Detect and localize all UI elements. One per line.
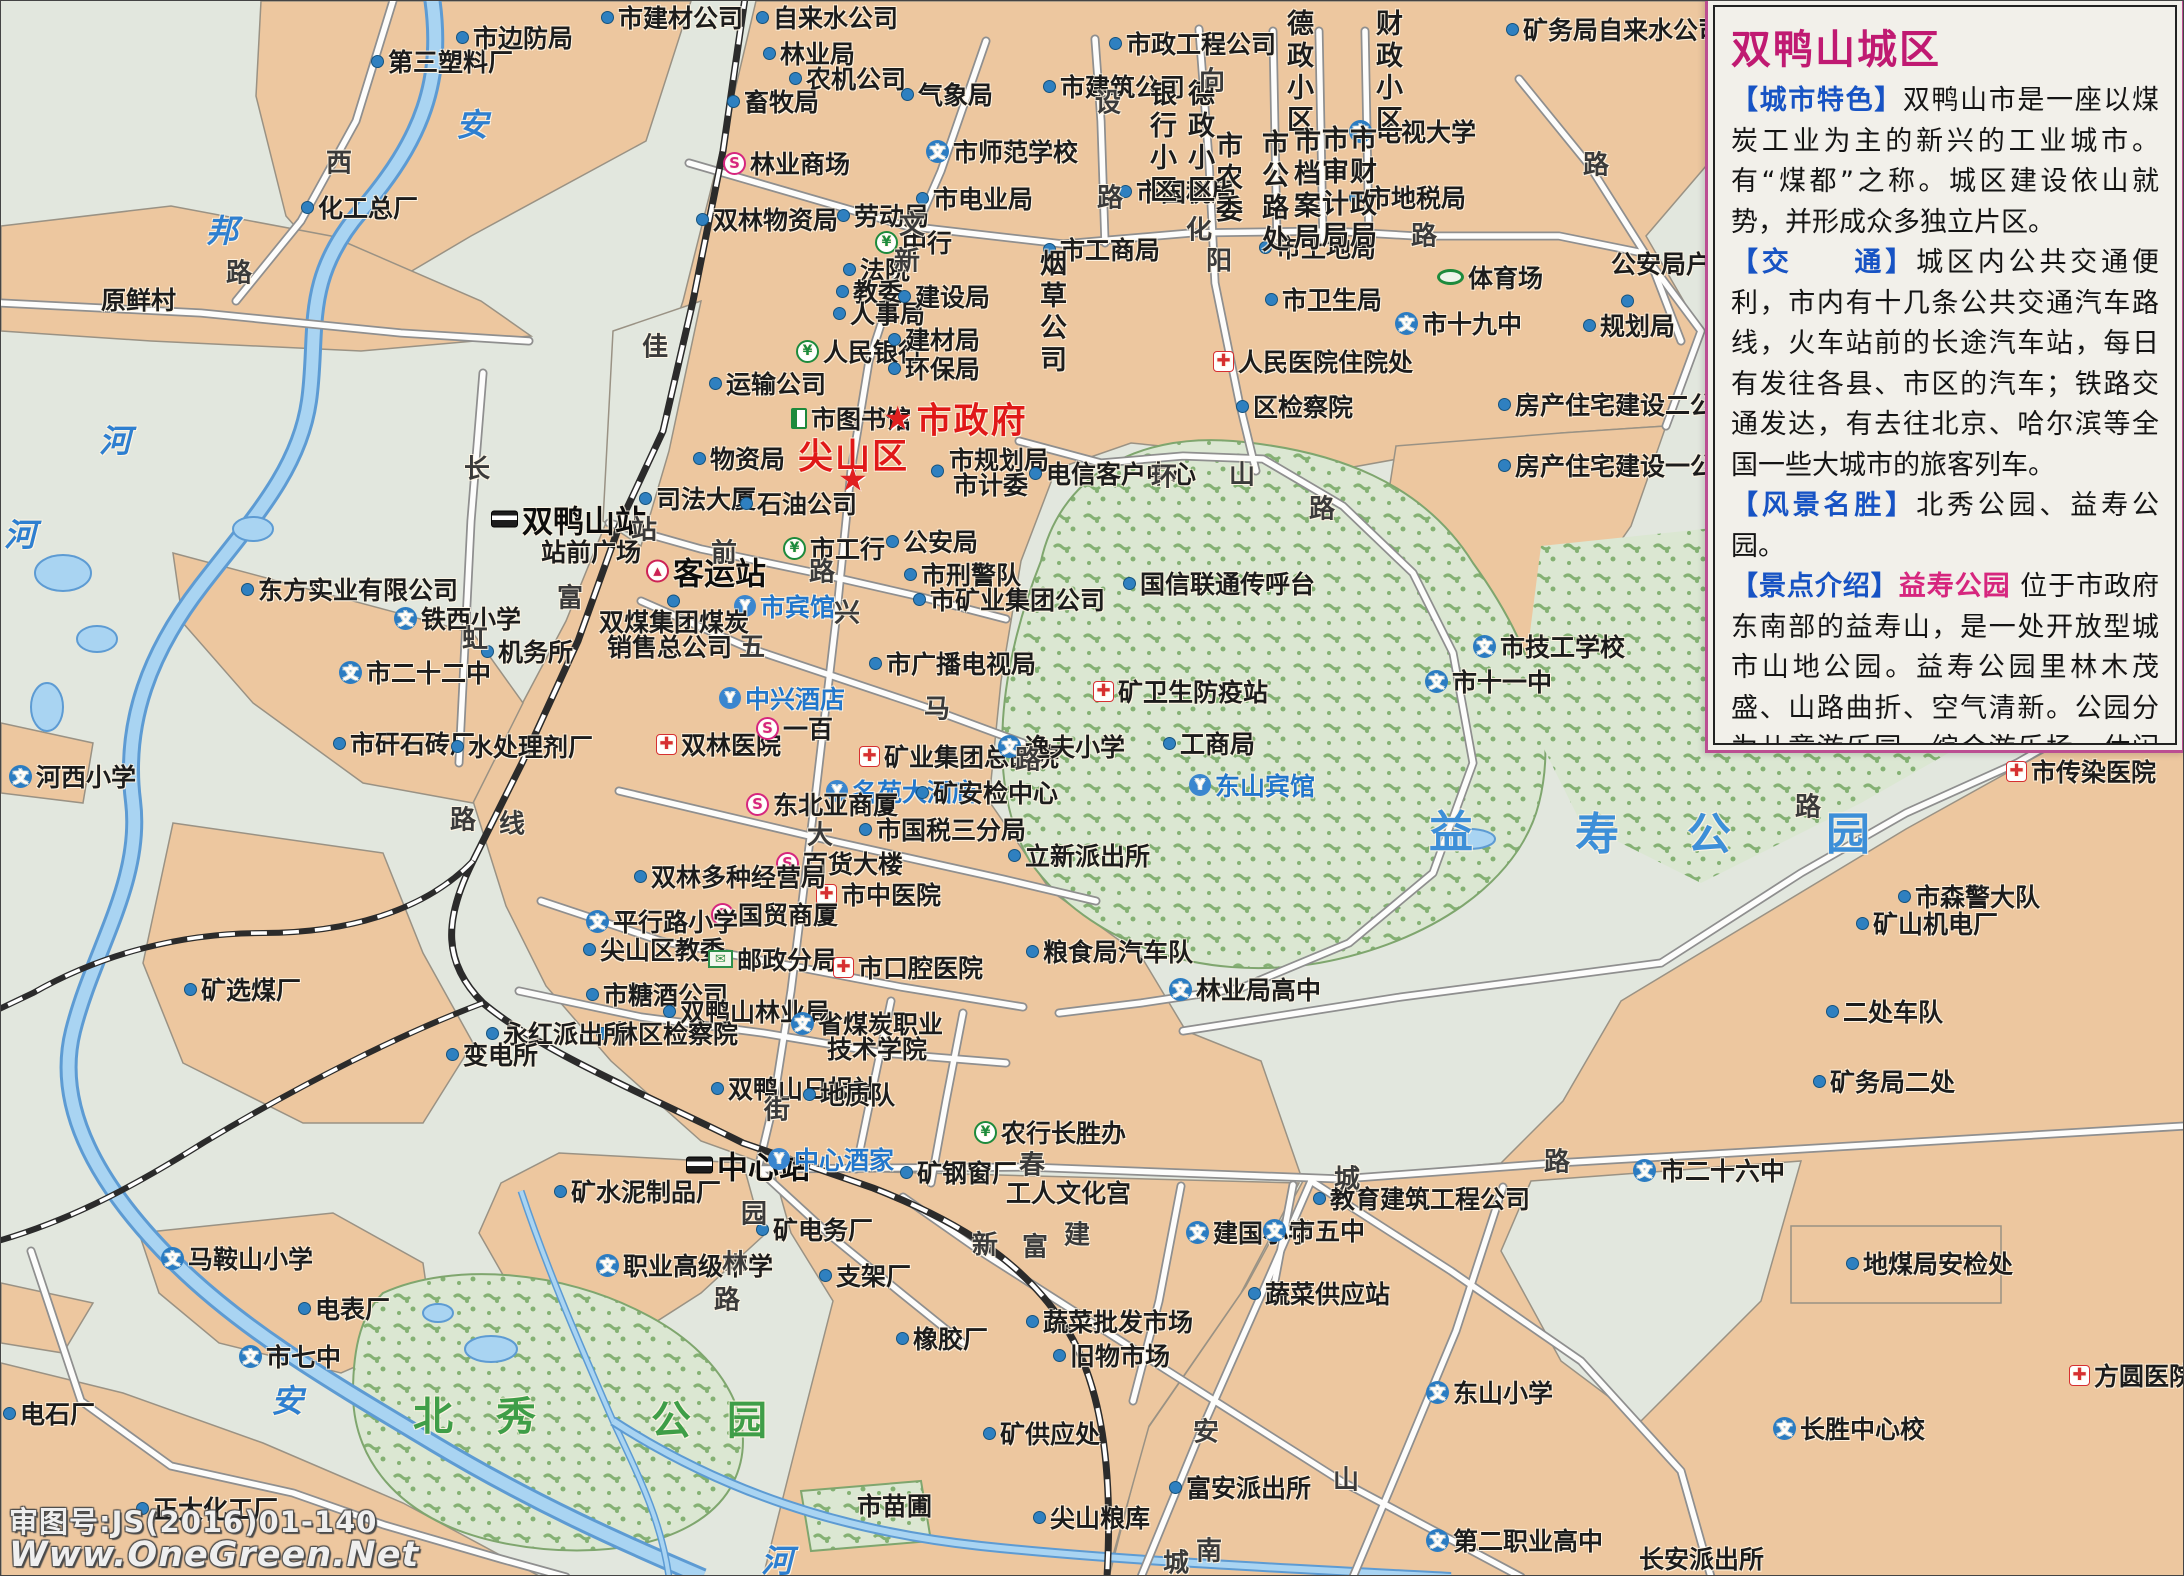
poi-dot [301, 201, 314, 214]
school-icon: 文 [161, 1247, 184, 1270]
map-label: 市政工程公司 [1109, 25, 1276, 61]
map-label: 文市十一中 [1425, 663, 1552, 699]
hospital-icon: ✚ [833, 957, 854, 978]
map-label: 园 [727, 1388, 767, 1446]
poi-dot [837, 209, 850, 222]
poi-label: 化工总厂 [318, 189, 418, 225]
poi-dot [1109, 37, 1122, 50]
poi-label: 邦 [206, 206, 238, 252]
poi-label: 建设局 [915, 278, 990, 314]
map-label: 文河西小学 [9, 758, 136, 794]
map-label: 立新派出所 [1008, 837, 1150, 873]
hospital-icon: ✚ [859, 746, 880, 767]
watermark-site: Www.OneGreen.Net [9, 1537, 419, 1574]
poi-dot [1265, 293, 1278, 306]
map-label: 文第二职业高中 [1426, 1522, 1603, 1558]
map-label: 山 [1333, 1460, 1359, 1497]
map-label: 物资局 [693, 440, 785, 476]
poi-label: 市十一中 [1452, 663, 1552, 699]
map-label: 房产住宅建设二公司 [1498, 386, 1740, 422]
map-label: 工商局 [1163, 725, 1255, 761]
school-icon: 文 [1773, 1417, 1796, 1440]
poi-label: 市地税局 [1366, 179, 1466, 215]
poi-label: 市政府 [917, 393, 1028, 444]
poi-dot [1008, 849, 1021, 862]
map-label: 市计委 [953, 466, 1028, 502]
map-label: 向 [1199, 61, 1225, 98]
poi-label: 财政小区 [1367, 9, 1406, 137]
map-label: 园 [1826, 798, 1870, 862]
poi-label: 长 [464, 449, 490, 486]
panel-title: 双鸭山城区 [1731, 17, 2159, 75]
poi-label: 秀 [496, 1384, 536, 1442]
poi-dot [1813, 1075, 1826, 1088]
map-label: 德政小区 [1278, 9, 1317, 137]
map-label: 路 [1411, 216, 1437, 253]
poi-label: 地质队 [820, 1076, 895, 1112]
map-label: 石油公司 [740, 485, 857, 521]
map-label: 文市二十二中 [339, 654, 491, 690]
map-label: 益 [1429, 796, 1473, 860]
map-label: 新 [972, 1225, 998, 1262]
map-label: 大 [807, 815, 833, 852]
poi-label: 橡胶厂 [913, 1320, 988, 1356]
map-label: 双林多种经营局 [634, 858, 826, 894]
poi-label: 河 [761, 1536, 793, 1576]
poi-label: 电石厂 [20, 1395, 95, 1431]
poi-label: 二处车队 [1843, 993, 1943, 1029]
poi-label: 市工商局 [1060, 231, 1160, 267]
poi-dot [298, 1302, 311, 1315]
section-head: 【交 通】 [1731, 247, 1916, 278]
hospital-icon: ✚ [1213, 351, 1234, 372]
poi-dot [931, 465, 944, 478]
map-label: 路 [1015, 740, 1041, 777]
map-label: 林 [722, 1244, 748, 1281]
poi-label: 矿卫生防疫站 [1118, 673, 1268, 709]
poi-dot [456, 31, 469, 44]
map-label: 寿 [1575, 798, 1619, 862]
map-label: 南 [1196, 1531, 1222, 1568]
poi-dot [554, 1185, 567, 1198]
poi-label: 尖山粮库 [1050, 1499, 1150, 1535]
map-label: 站 [631, 510, 657, 547]
poi-dot [446, 1048, 459, 1061]
poi-label: 市五中 [1290, 1212, 1365, 1248]
map-label: 矿选煤厂 [184, 971, 301, 1007]
map-label: 文市师范学校 [926, 133, 1078, 169]
map-label: 二处车队 [1826, 993, 1943, 1029]
poi-dot [898, 290, 911, 303]
poi-label: 林区检察院 [613, 1015, 738, 1051]
poi-label: 物资局 [710, 440, 785, 476]
info-panel-inner: 双鸭山城区 【城市特色】双鸭山市是一座以煤炭工业为主的新兴的工业城市。有“煤都”… [1713, 5, 2177, 745]
map-label: 河 [761, 1536, 793, 1576]
poi-label: 河 [4, 510, 36, 556]
map-label: 城 [1334, 1159, 1360, 1196]
shopping-icon: S [746, 793, 769, 816]
map-marker [1621, 295, 1638, 308]
poi-label: 山 [1229, 455, 1255, 492]
poi-dot [1248, 1287, 1261, 1300]
map-label: S一百 [756, 710, 833, 746]
poi-dot [1033, 1511, 1046, 1524]
map-label: ✚市传染医院 [2006, 753, 2156, 789]
map-label: 西 [326, 143, 352, 180]
poi-label: 矿水泥制品厂 [571, 1173, 721, 1209]
map-label: 路 [226, 253, 252, 290]
poi-label: 园 [741, 1194, 767, 1231]
map-label: 烟草公司 [1031, 249, 1070, 377]
poi-dot [888, 333, 901, 346]
poi-label: 机务所 [498, 633, 573, 669]
map-label: 路 [450, 800, 476, 837]
poi-label: 虹 [462, 619, 488, 656]
poi-label: 农机公司 [806, 60, 906, 96]
map-label: 市农委 [1207, 131, 1246, 227]
map-marker [931, 465, 948, 478]
poi-dot [819, 1269, 832, 1282]
poi-label: 水处理剂厂 [468, 728, 593, 764]
poi-dot [1043, 80, 1056, 93]
poi-label: 新 [972, 1225, 998, 1262]
map-label: 水处理剂厂 [451, 728, 593, 764]
poi-label: 富 [557, 578, 583, 615]
poi-label: 站前广场 [541, 533, 641, 569]
poi-dot [1026, 1315, 1039, 1328]
map-label: 路 [1795, 787, 1821, 824]
poi-label: 益 [1429, 796, 1473, 860]
poi-label: 气象局 [918, 76, 993, 112]
poi-label: 市中医院 [841, 876, 941, 912]
school-icon: 文 [1426, 1529, 1449, 1552]
poi-label: 市传染医院 [2031, 753, 2156, 789]
poi-label: 石油公司 [757, 485, 857, 521]
bank-icon: ¥ [974, 1121, 997, 1144]
poi-label: 市口腔医院 [858, 949, 983, 985]
poi-label: 安 [456, 100, 488, 146]
map-label: 地煤局安检处 [1846, 1245, 2013, 1281]
map-label: 市国税三分局 [859, 811, 1026, 847]
poi-label: 规划局 [1600, 307, 1675, 343]
poi-dot [696, 213, 709, 226]
map-label: 市财政局 [1341, 125, 1380, 253]
map-canvas: 第三塑料厂市边防局化工总厂原鲜村市建材公司自来水公司林业局农机公司畜牧局气象局S… [0, 0, 2184, 1576]
hotel-icon: Y [768, 1148, 790, 1170]
poi-label: 立新派出所 [1025, 837, 1150, 873]
poi-dot [711, 1082, 724, 1095]
poi-label: 矿山机电厂 [1873, 905, 1998, 941]
bank-icon: ¥ [796, 340, 819, 363]
map-label: 地质队 [803, 1076, 895, 1112]
map-label: 安 [1193, 1412, 1219, 1449]
poi-label: 矿选煤厂 [201, 971, 301, 1007]
map-label: 原鲜村 [101, 281, 176, 317]
poi-label: 城 [1163, 1543, 1189, 1576]
poi-label: 德政小区 [1278, 9, 1317, 137]
poi-label: 站 [631, 510, 657, 547]
shopping-icon: S [756, 717, 779, 740]
map-label: 新 [894, 241, 920, 278]
school-icon: 文 [339, 661, 362, 684]
section-head: 【景点介绍】 [1731, 571, 1899, 602]
poi-label: 市七中 [266, 1338, 341, 1374]
poi-label: 矿务局二处 [1830, 1063, 1955, 1099]
poi-label: 街 [764, 1090, 790, 1127]
school-icon: 文 [926, 140, 949, 163]
poi-dot [763, 47, 776, 60]
map-label: 畜牧局 [727, 83, 819, 119]
poi-label: 林业局高中 [1196, 971, 1321, 1007]
map-label: 矿钢窗厂 [900, 1154, 1017, 1190]
poi-label: 银行小区 [1141, 79, 1180, 207]
map-label: 秀 [496, 1384, 536, 1442]
map-marker [667, 595, 684, 608]
map-label: 春 [1019, 1145, 1045, 1182]
school-icon: 文 [1169, 978, 1192, 1001]
map-label: 站前广场 [541, 533, 641, 569]
poi-label: 蔬菜供应站 [1265, 1275, 1390, 1311]
poi-label: 路 [1411, 216, 1437, 253]
map-label: 环 [1151, 457, 1177, 494]
poi-dot [1053, 1349, 1066, 1362]
school-icon: 文 [1186, 1221, 1209, 1244]
poi-label: 路 [1583, 145, 1609, 182]
poi-dot [904, 568, 917, 581]
poi-label: 南 [1196, 1531, 1222, 1568]
poi-dot [869, 657, 882, 670]
poi-label: 长胜中心校 [1800, 1410, 1925, 1446]
shopping-icon: S [723, 152, 746, 175]
poi-label: 支架厂 [836, 1257, 911, 1293]
poi-label: 变电所 [463, 1036, 538, 1072]
info-panel: 双鸭山城区 【城市特色】双鸭山市是一座以煤炭工业为主的新兴的工业城市。有“煤都”… [1705, 0, 2184, 753]
map-label: 园 [741, 1194, 767, 1231]
poi-label: 山 [1333, 1460, 1359, 1497]
poi-label: 人民医院住院处 [1238, 343, 1413, 379]
poi-label: 市边防局 [473, 19, 573, 55]
school-icon: 文 [596, 1254, 619, 1277]
poi-label: 五 [739, 627, 765, 664]
poi-label: 一百 [783, 710, 833, 746]
poi-label: 蔬菜批发市场 [1043, 1303, 1193, 1339]
poi-label: 大 [807, 815, 833, 852]
poi-dot [586, 988, 599, 1001]
school-icon: 文 [394, 607, 417, 630]
poi-dot [901, 88, 914, 101]
map-label: 公 [1687, 798, 1731, 862]
map-label: 线 [499, 804, 525, 841]
school-icon: 文 [1426, 1381, 1449, 1404]
map-label: 银行小区 [1141, 79, 1180, 207]
poi-label: 公 [1687, 798, 1731, 862]
map-label: 公 [651, 1388, 691, 1446]
poi-dot [896, 1332, 909, 1345]
map-label: 文市五中 [1263, 1212, 1365, 1248]
poi-label: 路 [714, 1280, 740, 1317]
poi-label: 路 [1795, 787, 1821, 824]
poi-label: 路 [226, 253, 252, 290]
map-label: 长 [464, 449, 490, 486]
section-head: 【风景名胜】 [1731, 490, 1916, 521]
poi-dot [886, 535, 899, 548]
poi-label: 路 [1015, 740, 1041, 777]
map-label: 公安局 [886, 523, 978, 559]
poi-dot [1856, 917, 1869, 930]
poi-label: 市师范学校 [953, 133, 1078, 169]
map-label: 双林物资局 [696, 201, 838, 237]
map-label: 蔬菜供应站 [1248, 1275, 1390, 1311]
poi-label: 林 [722, 1244, 748, 1281]
panel-paragraph-city: 【城市特色】双鸭山市是一座以煤炭工业为主的新兴的工业城市。有“煤都”之称。城区建… [1731, 81, 2159, 243]
panel-paragraph-transport: 【交 通】城区内公共交通便利，市内有十几条公共交通汽车路线，火车站前的长途汽车站… [1731, 243, 2159, 486]
map-label: 变电所 [446, 1036, 538, 1072]
school-icon: 文 [9, 765, 32, 788]
poi-dot [727, 95, 740, 108]
map-label: 邦 [206, 206, 238, 252]
map-label: 长安派出所 [1639, 1540, 1764, 1576]
poi-label: 安 [271, 1376, 303, 1422]
poi-dot [1026, 945, 1039, 958]
poi-label: 长安派出所 [1639, 1540, 1764, 1576]
library-icon [791, 408, 807, 429]
poi-label: 河西小学 [36, 758, 136, 794]
poi-label: 市二十二中 [366, 654, 491, 690]
poi-label: 方圆医院 [2094, 1357, 2184, 1393]
school-icon: 文 [1473, 635, 1496, 658]
hotel-icon: Y [1189, 774, 1211, 796]
poi-label: 邮政分局 [737, 941, 837, 977]
poi-label: 文 [899, 205, 925, 242]
map-label: 矿水泥制品厂 [554, 1173, 721, 1209]
poi-label: 设 [1095, 83, 1121, 120]
map-label: 马 [924, 689, 950, 726]
section-body: 城区内公共交通便利，市内有十几条公共交通汽车路线，火车站前的长途汽车站，每日有发… [1731, 247, 2159, 481]
map-label: 前 [711, 533, 737, 570]
map-label: 街 [764, 1090, 790, 1127]
panel-paragraph-scenery: 【风景名胜】北秀公园、益寿公园。 [1731, 486, 2159, 567]
poi-label: 东山小学 [1453, 1374, 1553, 1410]
map-label: 环保局 [888, 350, 980, 386]
map-label: 粮食局汽车队 [1026, 933, 1193, 969]
map-label: 矿务局自来水公司 [1506, 11, 1723, 47]
map-label: ✚方圆医院 [2069, 1357, 2184, 1393]
map-label: 技术学院 [827, 1030, 927, 1066]
poi-label: 市计委 [953, 466, 1028, 502]
map-label: 安 [456, 100, 488, 146]
map-label: 市建材公司 [601, 0, 743, 35]
map-label: 财政小区 [1367, 9, 1406, 137]
poi-dot [693, 452, 706, 465]
poi-dot [1621, 295, 1634, 308]
map-label: 市边防局 [456, 19, 573, 55]
map-label: 尖山区教委 [583, 931, 725, 967]
poi-dot [756, 11, 769, 24]
map-label: 橡胶厂 [896, 1320, 988, 1356]
map-label: 路 [1097, 178, 1123, 215]
poi-label: 西 [326, 143, 352, 180]
poi-label: 运输公司 [726, 365, 826, 401]
poi-label: 区检察院 [1253, 388, 1353, 424]
poi-label: 佳 [642, 327, 668, 364]
poi-label: 市宾馆 [760, 588, 835, 624]
map-label: 房产住宅建设一公司 [1498, 447, 1740, 483]
map-label: 规划局 [1583, 307, 1675, 343]
map-label: 电石厂 [3, 1395, 95, 1431]
map-label: 化工总厂 [301, 189, 418, 225]
poi-label: 路 [1544, 1142, 1570, 1179]
poi-label: 矿安检中心 [933, 774, 1058, 810]
poi-dot [1313, 1192, 1326, 1205]
map-label: 市苗圃 [857, 1487, 932, 1523]
map-label: 路 [1309, 489, 1335, 526]
map-label: 富安派出所 [1169, 1469, 1311, 1505]
poi-label: 职业高级中学 [623, 1247, 773, 1283]
map-label: Y东山宾馆 [1189, 767, 1315, 803]
map-label: S林业商场 [723, 145, 850, 181]
poi-label: 矿务局自来水公司 [1523, 11, 1723, 47]
poi-label: 自来水公司 [773, 0, 898, 35]
poi-dot [833, 307, 846, 320]
map-label: 建设局 [898, 278, 990, 314]
poi-dot [803, 1088, 816, 1101]
map-label: 矿供应处 [983, 1415, 1100, 1451]
poi-label: 工商局 [1180, 725, 1255, 761]
poi-label: 建 [1064, 1215, 1090, 1252]
poi-label: 兴 [834, 593, 860, 630]
poi-dot [451, 740, 464, 753]
watermark-approval-number: 审图号:JS(2016)01-140 [9, 1507, 419, 1537]
poi-label: 烟草公司 [1031, 249, 1070, 377]
school-icon: 文 [586, 910, 609, 933]
map-label: 销售总公司 [607, 628, 732, 664]
poi-label: 市十九中 [1422, 305, 1522, 341]
map-label: 机务所 [481, 633, 573, 669]
poi-label: 河 [99, 416, 131, 462]
poi-label: 市政工程公司 [1126, 25, 1276, 61]
poi-dot [916, 786, 929, 799]
poi-label: 市广播电视局 [886, 645, 1036, 681]
map-label: 路 [1544, 1142, 1570, 1179]
poi-label: 电表厂 [315, 1290, 390, 1326]
poi-label: 林业商场 [750, 145, 850, 181]
railway-station-icon [491, 511, 518, 528]
map-label: 佳 [642, 327, 668, 364]
map-label: 富 [557, 578, 583, 615]
map-label: 城 [1163, 1543, 1189, 1576]
poi-label: 市二十六中 [1660, 1152, 1785, 1188]
poi-dot [639, 492, 652, 505]
map-label: 电表厂 [298, 1290, 390, 1326]
school-icon: 文 [1395, 312, 1418, 335]
poi-label: 城 [1334, 1159, 1360, 1196]
map-label: 支架厂 [819, 1257, 911, 1293]
section-head: 【城市特色】 [1731, 85, 1903, 116]
map-label: 区检察院 [1236, 388, 1353, 424]
poi-label: 阳 [1206, 241, 1232, 278]
map-label: 路 [809, 552, 835, 589]
poi-label: 寿 [1575, 798, 1619, 862]
poi-dot [1029, 467, 1042, 480]
hospital-icon: ✚ [1093, 681, 1114, 702]
poi-label: 前 [711, 533, 737, 570]
map-label: 文东山小学 [1426, 1374, 1553, 1410]
poi-label: 马鞍山小学 [188, 1240, 313, 1276]
poi-label: 路 [1309, 489, 1335, 526]
map-label: 建 [1064, 1215, 1090, 1252]
poi-label: 矿电务厂 [773, 1211, 873, 1247]
poi-label: 市建材公司 [618, 0, 743, 35]
